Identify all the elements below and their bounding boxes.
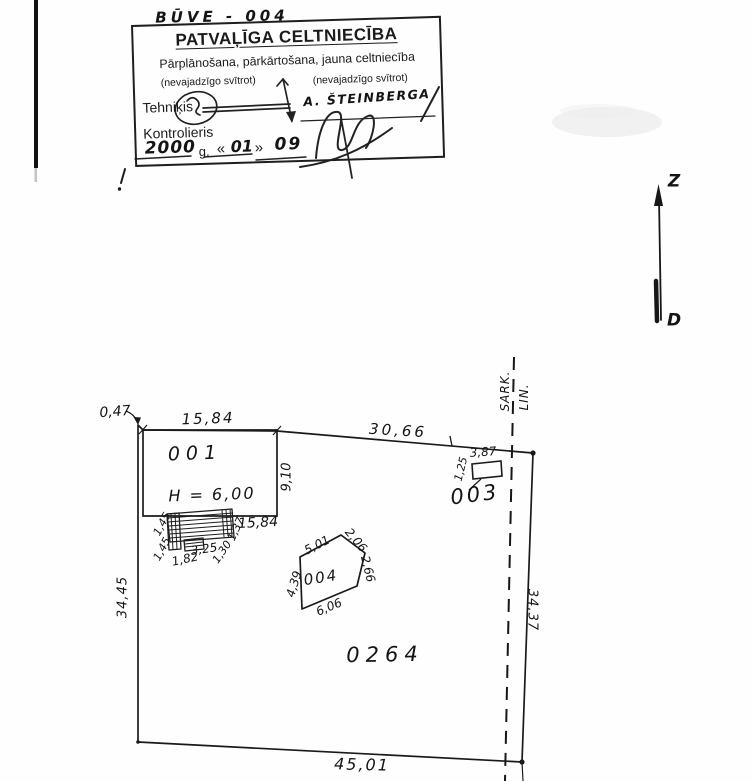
north-arrow-icon — [654, 184, 663, 321]
red-line-dashed — [505, 357, 514, 781]
dim-b003-width: 3,87 — [469, 445, 496, 459]
dim-b001-side: 9,10 — [281, 463, 294, 492]
dim-b004-bottom: 6,06 — [314, 596, 343, 617]
dim-boundary-left: 34,45 — [117, 576, 130, 618]
stamp-title: PATVAĻĪGA CELTNIECĪBA — [133, 24, 439, 50]
stamp-subtitle: Pārplānošana, pārkārtošana, jauna celtni… — [134, 50, 440, 71]
scan-smudge — [552, 104, 662, 137]
red-line-label-lin: LIN. — [518, 383, 530, 410]
dim-porch-1: 1,45 — [151, 511, 172, 538]
dim-porch-6: 1,37 — [226, 516, 246, 543]
dim-b004-left: 4,39 — [284, 569, 303, 598]
margin-mark — [118, 169, 125, 191]
stamp-date-month: 01 — [230, 138, 253, 155]
dim-offset-left: 0,47 — [99, 404, 131, 420]
compass-north-label: Z — [668, 174, 680, 191]
building-004-label: 004 — [303, 568, 340, 588]
dim-b004-ne: 2,06 — [343, 526, 369, 554]
stamp-date-quote-open: « — [216, 141, 225, 156]
stamp-signed-name: A. ŠTEINBERGA — [303, 88, 431, 109]
scan-edge-artifact — [34, 0, 38, 182]
stamp-date-quote-close: » — [254, 140, 263, 155]
stamp-date-day: 09 — [274, 136, 302, 154]
dim-boundary-bottom: 45,01 — [334, 756, 390, 773]
building-003-label: 003 — [449, 482, 500, 509]
stamp: PATVAĻĪGA CELTNIECĪBA Pārplānošana, pārk… — [131, 16, 445, 167]
dim-b003-depth: 1,25 — [453, 456, 470, 482]
dim-top-right: 30,66 — [369, 422, 428, 441]
scanned-survey-plan-page: BŪVE - 004 PATVAĻĪGA CELTNIECĪBA Pārplān… — [0, 0, 752, 781]
stamp-note-right: (nevajadzīgo svītrot) — [313, 73, 408, 86]
building-001-label: 001 — [168, 444, 223, 465]
dim-b001-top: 15,84 — [181, 411, 234, 428]
dim-b004-top: 5,01 — [302, 534, 331, 557]
dim-b004-right: 2,66 — [359, 555, 377, 584]
stamp-date-g: g. — [199, 145, 210, 158]
compass-south-label: D — [667, 313, 681, 330]
stamp-date-year: 2000 — [144, 139, 196, 158]
red-line-label-sark: SARK. — [499, 371, 511, 412]
dim-porch-2: 1,45 — [151, 536, 172, 563]
stamp-note-left: (nevajadzīgo svītrot) — [161, 75, 256, 88]
dim-boundary-right: 34,37 — [526, 589, 539, 631]
building-001-height-note: H = 6,00 — [168, 485, 256, 504]
parcel-number: 0264 — [346, 644, 424, 666]
stamp-tehnikis-label: Tehniķis — [142, 99, 193, 114]
